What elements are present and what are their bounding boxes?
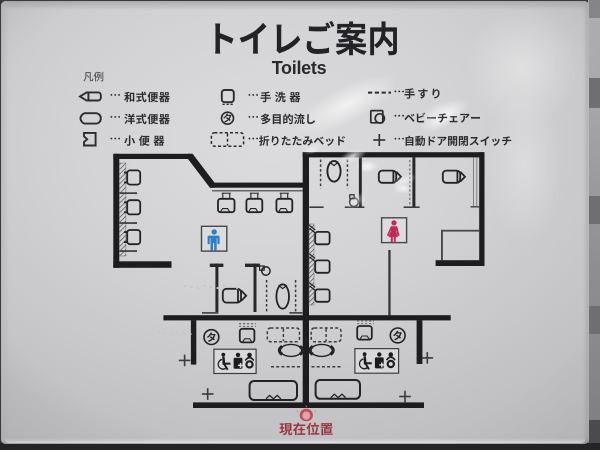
svg-text:Toilets: Toilets: [272, 58, 327, 78]
